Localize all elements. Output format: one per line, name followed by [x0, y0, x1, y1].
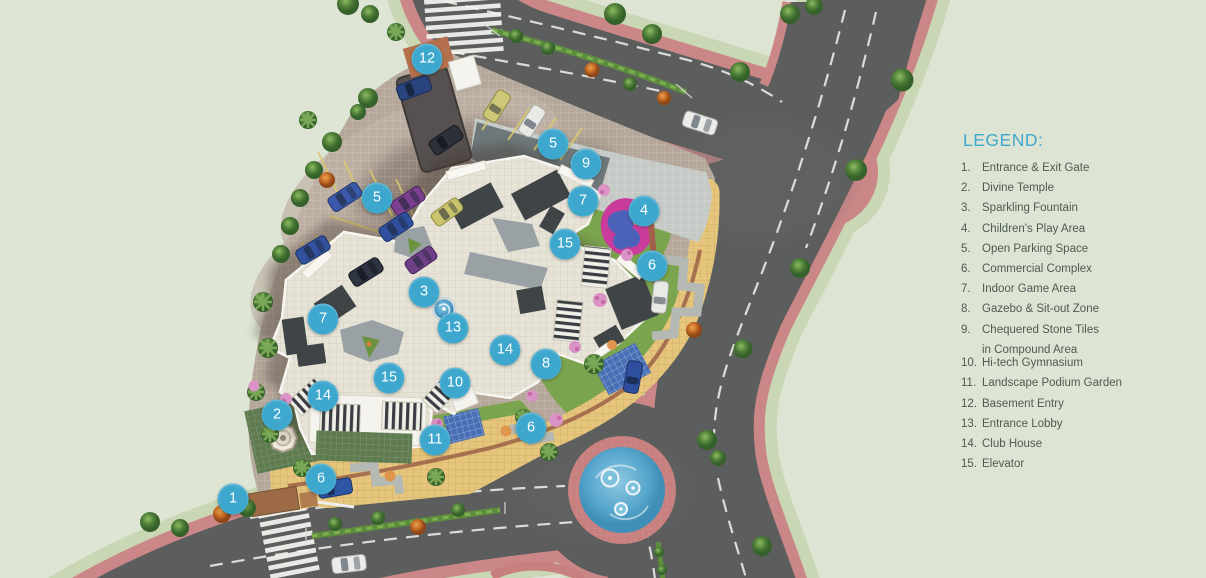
legend-title: LEGEND: — [963, 130, 1161, 151]
legend-item-label: Elevator — [982, 458, 1024, 472]
legend-item-label: Divine Temple — [982, 182, 1054, 196]
legend-item: 6. Commercial Complex — [961, 263, 1161, 277]
map-marker-8: 8 — [531, 349, 562, 380]
legend-item: 10. Hi-tech Gymnasium — [961, 357, 1161, 371]
legend-item-label-line2: in Compound Area — [982, 344, 1161, 358]
map-marker-10: 10 — [440, 368, 471, 399]
legend-item-number: 8. — [961, 303, 982, 317]
legend-item-number: 13. — [961, 418, 982, 432]
map-marker-4: 4 — [629, 196, 660, 227]
map-marker-15: 15 — [550, 229, 581, 260]
map-marker-7: 7 — [308, 304, 339, 335]
legend-item-number: 1. — [961, 162, 982, 176]
legend-item-number: 15. — [961, 458, 982, 472]
legend-item-number: 12. — [961, 398, 982, 412]
map-marker-2: 2 — [262, 400, 293, 431]
legend-item-label: Entrance & Exit Gate — [982, 162, 1089, 176]
legend-item-number: 10. — [961, 357, 982, 371]
legend-item-label: Children's Play Area — [982, 223, 1085, 237]
map-marker-3: 3 — [409, 277, 440, 308]
legend-item: 15. Elevator — [961, 458, 1161, 472]
legend-item-label: Sparkling Fountain — [982, 202, 1078, 216]
legend-item-label: Indoor Game Area — [982, 283, 1076, 297]
legend-item-label: Chequered Stone Tiles — [982, 324, 1099, 338]
site-plan-page: 12595741563713148151014261161 LEGEND: 1.… — [0, 0, 1206, 578]
map-marker-1: 1 — [218, 484, 249, 515]
legend-item: 4. Children's Play Area — [961, 223, 1161, 237]
map-marker-15: 15 — [374, 363, 405, 394]
legend-item: 3. Sparkling Fountain — [961, 202, 1161, 216]
legend-item-number: 14. — [961, 438, 982, 452]
map-marker-14: 14 — [308, 381, 339, 412]
legend-items: 1. Entrance & Exit Gate 2. Divine Temple… — [961, 162, 1161, 472]
map-marker-5: 5 — [362, 183, 393, 214]
legend-item-label: Hi-tech Gymnasium — [982, 357, 1083, 371]
legend-item: 8. Gazebo & Sit-out Zone — [961, 303, 1161, 317]
map-marker-13: 13 — [438, 313, 469, 344]
legend-item-number: 11. — [961, 377, 982, 391]
legend-item: 9. Chequered Stone Tiles in Compound Are… — [961, 324, 1161, 358]
legend-item-number: 6. — [961, 263, 982, 277]
legend-item: 5. Open Parking Space — [961, 243, 1161, 257]
legend-item-label: Entrance Lobby — [982, 418, 1063, 432]
legend-item-label: Basement Entry — [982, 398, 1064, 412]
legend-item-number: 2. — [961, 182, 982, 196]
legend-item-number: 9. — [961, 324, 982, 338]
map-marker-6: 6 — [306, 464, 337, 495]
legend-item-number: 7. — [961, 283, 982, 297]
legend-item: 13. Entrance Lobby — [961, 418, 1161, 432]
legend-item-number: 4. — [961, 223, 982, 237]
legend-item-label: Landscape Podium Garden — [982, 377, 1122, 391]
map-marker-14: 14 — [490, 335, 521, 366]
legend-item: 12. Basement Entry — [961, 398, 1161, 412]
map-marker-6: 6 — [516, 413, 547, 444]
legend: LEGEND: 1. Entrance & Exit Gate 2. Divin… — [961, 130, 1161, 478]
legend-item: 2. Divine Temple — [961, 182, 1161, 196]
map-marker-12: 12 — [412, 44, 443, 75]
map-marker-5: 5 — [538, 129, 569, 160]
legend-item-number: 3. — [961, 202, 982, 216]
legend-item-label: Open Parking Space — [982, 243, 1088, 257]
legend-item: 14. Club House — [961, 438, 1161, 452]
legend-item-label: Club House — [982, 438, 1042, 452]
map-marker-9: 9 — [571, 149, 602, 180]
legend-item: 7. Indoor Game Area — [961, 283, 1161, 297]
map-marker-7: 7 — [568, 186, 599, 217]
legend-item-label: Gazebo & Sit-out Zone — [982, 303, 1099, 317]
legend-item-label: Commercial Complex — [982, 263, 1092, 277]
map-marker-11: 11 — [420, 425, 451, 456]
legend-item-number: 5. — [961, 243, 982, 257]
legend-item: 1. Entrance & Exit Gate — [961, 162, 1161, 176]
legend-item: 11. Landscape Podium Garden — [961, 377, 1161, 391]
map-marker-6: 6 — [637, 251, 668, 282]
